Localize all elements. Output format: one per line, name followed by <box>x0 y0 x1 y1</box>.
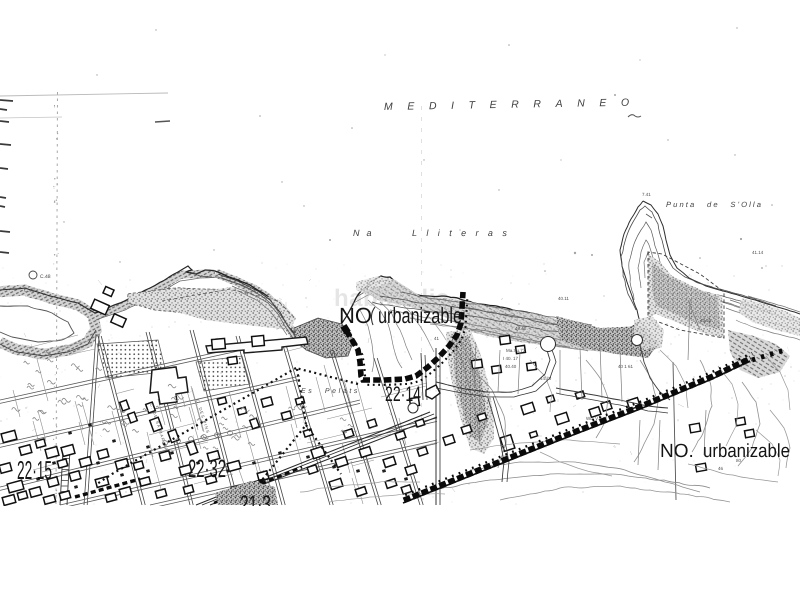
svg-text:22·32: 22·32 <box>188 455 226 483</box>
svg-text:40 1 61: 40 1 61 <box>618 364 634 369</box>
svg-text:49.40: 49.40 <box>515 326 527 331</box>
svg-text:44.52: 44.52 <box>700 318 712 323</box>
svg-text:Ma.Su.77: Ma.Su.77 <box>506 348 526 353</box>
svg-text:41.14: 41.14 <box>752 250 764 255</box>
svg-text:Punta de S'Olla: Punta de S'Olla <box>666 200 763 209</box>
svg-text:40.11: 40.11 <box>558 296 569 301</box>
svg-text:Na: Na <box>353 228 379 238</box>
svg-text:C.40: C.40 <box>24 288 35 294</box>
svg-text:22·15: 22·15 <box>17 455 52 485</box>
svg-text:I 40. 17: I 40. 17 <box>503 356 519 361</box>
svg-text:41: 41 <box>434 336 440 341</box>
svg-text:44.70: 44.70 <box>540 376 552 381</box>
svg-text:urbanizable: urbanizable <box>378 303 462 328</box>
svg-text:Es Pelats: Es Pelats <box>301 387 360 395</box>
svg-text:22·14: 22·14 <box>385 383 421 406</box>
svg-text:40.40: 40.40 <box>505 364 517 369</box>
svg-text:Lliteras: Lliteras <box>412 228 516 238</box>
svg-text:NO.: NO. <box>660 441 694 462</box>
svg-text:7.41: 7.41 <box>642 192 651 197</box>
svg-text:urbanizable: urbanizable <box>703 441 790 462</box>
svg-text:NO: NO <box>339 303 372 328</box>
svg-text:46: 46 <box>718 466 724 471</box>
svg-text:C.48: C.48 <box>40 274 51 280</box>
